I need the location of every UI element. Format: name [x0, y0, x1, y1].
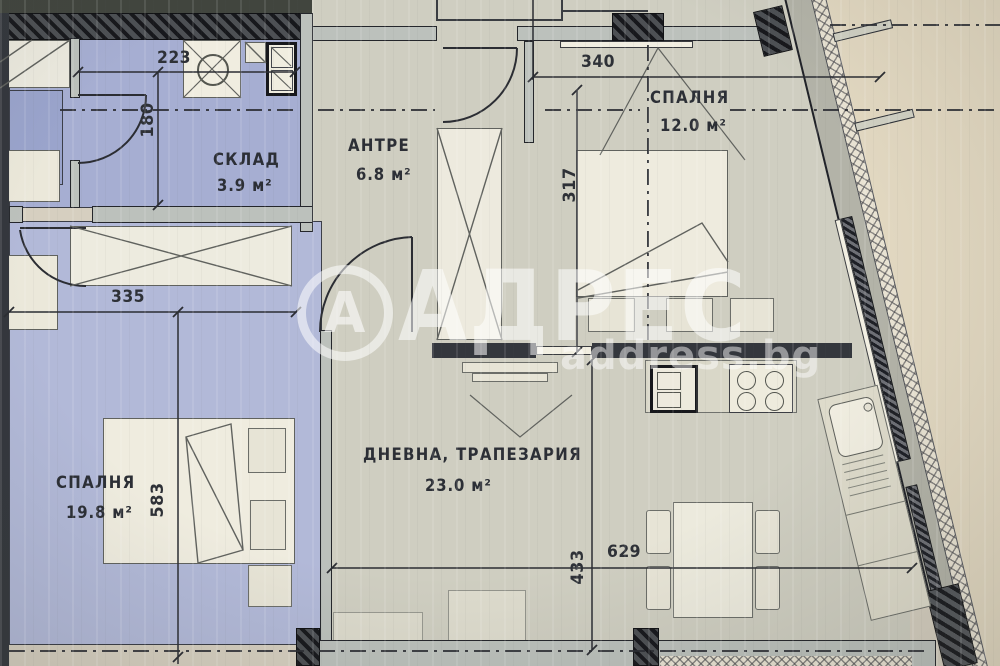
room-label-living: ДНЕВНА, ТРАПЕЗАРИЯ	[363, 445, 582, 465]
room-area-bedroom2: 12.0 м²	[660, 116, 727, 135]
dim-living-width: 629	[600, 542, 648, 562]
dim-storage-height: 180	[138, 95, 158, 144]
room-label-bedroom1: СПАЛНЯ	[56, 473, 135, 493]
room-area-storage: 3.9 м²	[217, 176, 273, 195]
dimension-ticks	[4, 67, 917, 662]
room-area-antre: 6.8 м²	[356, 165, 412, 184]
storage-door	[78, 95, 146, 163]
dim-living-height: 433	[568, 542, 588, 591]
room-label-antre: АНТРЕ	[348, 136, 410, 156]
dim-bedroom1-width: 335	[104, 287, 152, 307]
floor-plan: 223 180 340 317 335 583 629 433 СКЛАД 3.…	[0, 0, 1000, 666]
room-area-bedroom1: 19.8 м²	[66, 503, 133, 522]
room-label-storage: СКЛАД	[213, 150, 280, 170]
entry-door	[443, 48, 517, 122]
dim-bedroom2-height: 317	[560, 160, 580, 209]
bath-door	[20, 228, 86, 286]
dim-bedroom1-height: 583	[148, 475, 168, 524]
dim-bedroom2-width: 340	[574, 52, 622, 72]
dim-storage-width: 223	[150, 48, 198, 68]
room-area-living: 23.0 м²	[425, 476, 492, 495]
bedroom1-door	[320, 237, 412, 332]
corridor-neighbor-lines	[437, 0, 648, 20]
room-label-bedroom2: СПАЛНЯ	[650, 88, 729, 108]
